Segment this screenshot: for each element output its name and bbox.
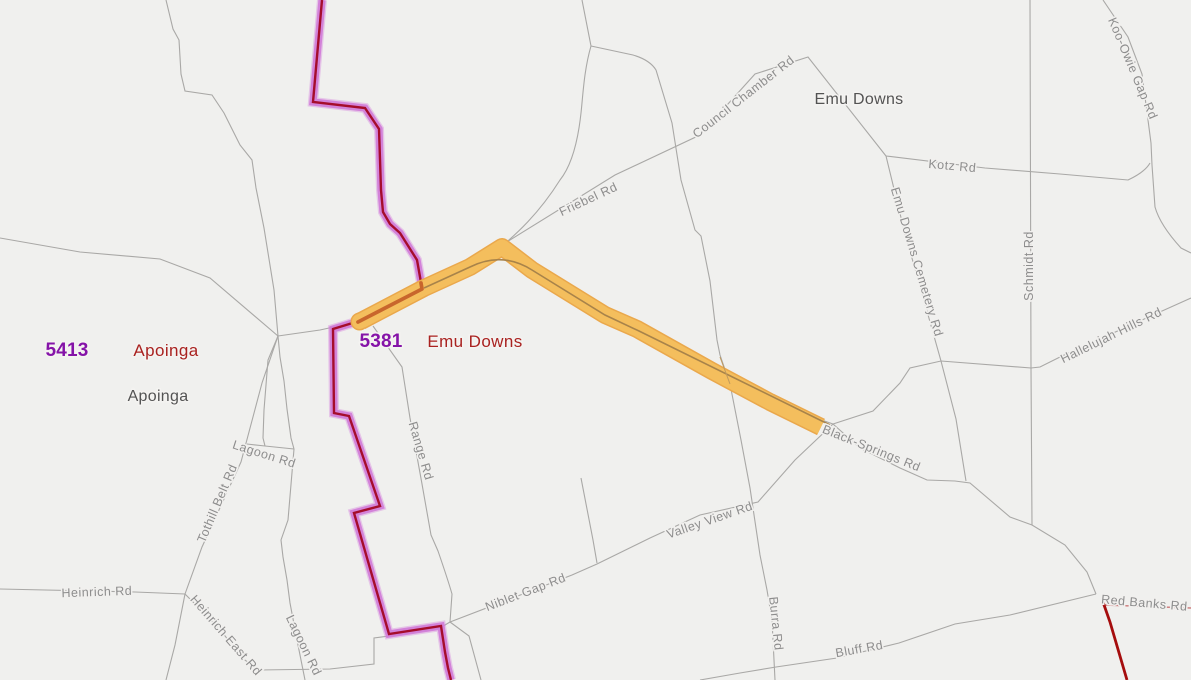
svg-text:5381: 5381 <box>359 331 402 352</box>
svg-text:Apoinga: Apoinga <box>133 341 198 360</box>
svg-text:Emu Downs: Emu Downs <box>815 91 904 108</box>
svg-text:Apoinga: Apoinga <box>128 388 189 405</box>
svg-text:Heinrich Rd: Heinrich Rd <box>61 584 132 600</box>
svg-text:Schmidt Rd: Schmidt Rd <box>1022 231 1036 301</box>
svg-text:Emu Downs: Emu Downs <box>427 332 522 351</box>
svg-text:5413: 5413 <box>45 340 88 361</box>
